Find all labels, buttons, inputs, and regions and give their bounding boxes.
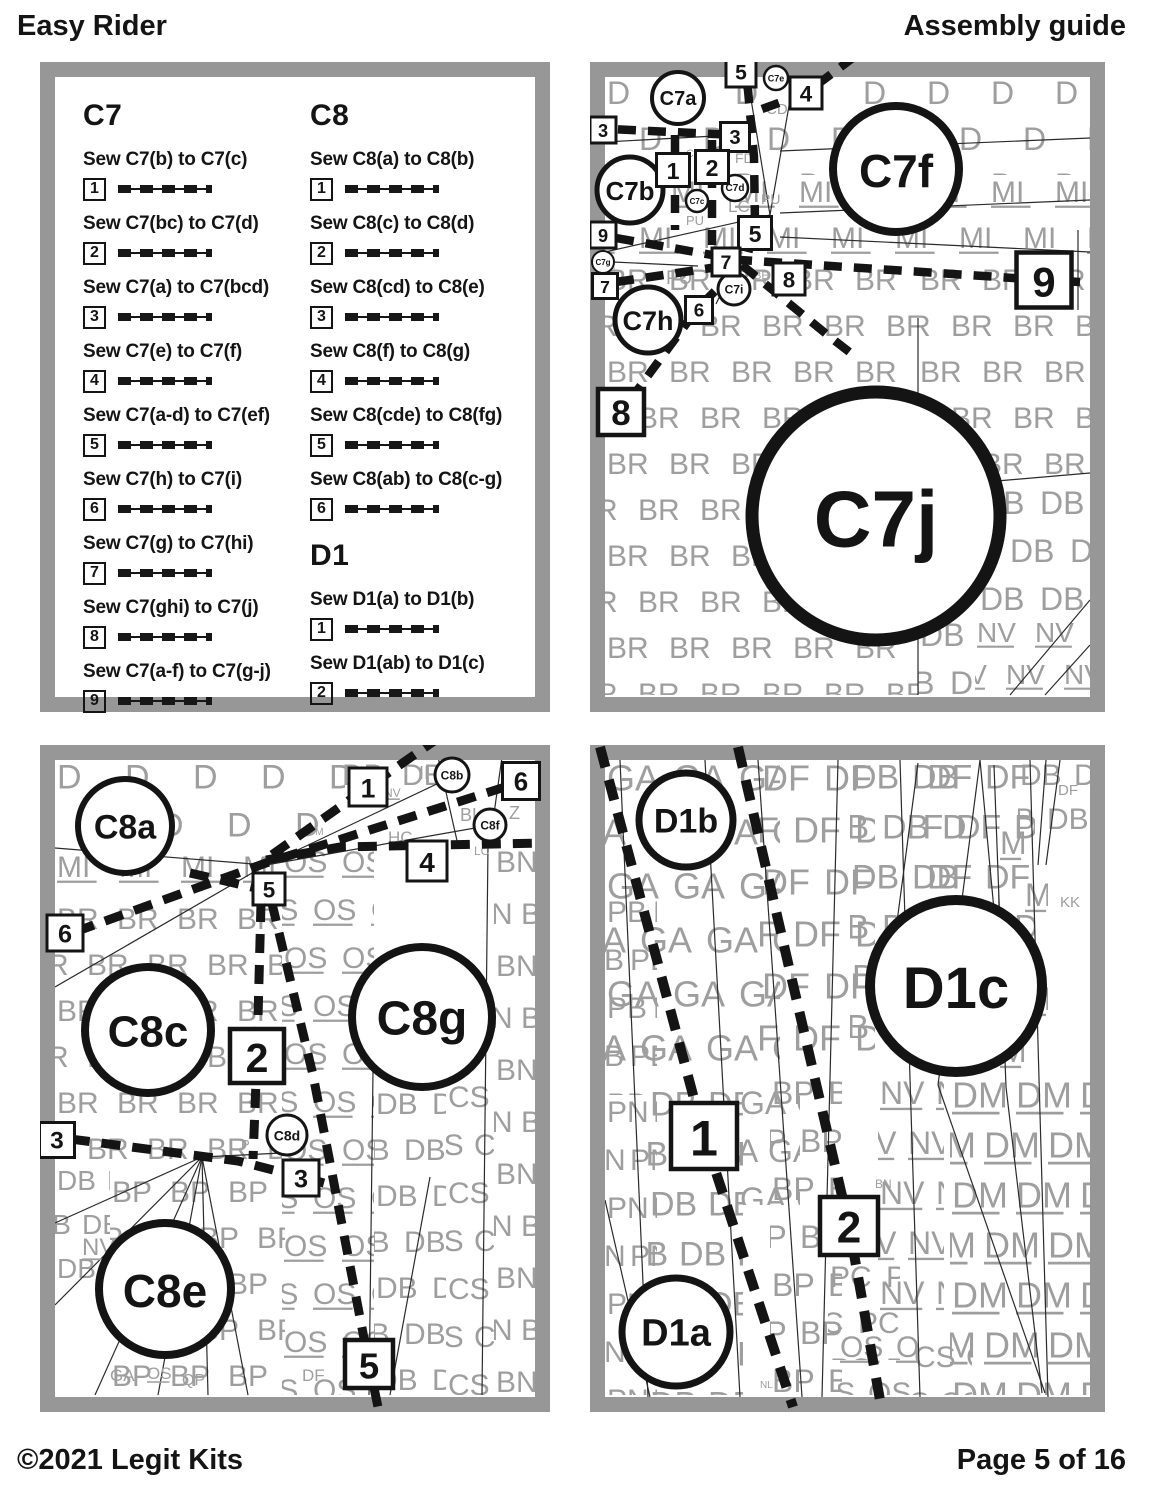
seam-number-label: 8 [783, 268, 795, 293]
seam-number-label: 7 [721, 252, 732, 274]
step-seam-row: 2 [83, 241, 310, 265]
fabric-code-NL: NL [760, 1380, 773, 1391]
fabric-code-region-DM [950, 1075, 1090, 1395]
step-instruction-text: Sew C8(cd) to C8(e) [310, 277, 535, 298]
sew-step: Sew D1(a) to D1(b)1 [310, 589, 535, 641]
step-number-box: 2 [310, 242, 333, 265]
step-instruction-text: Sew C7(h) to C7(i) [83, 469, 310, 490]
seam-dash-sample [345, 249, 439, 257]
sew-step: Sew C7(e) to C7(f)4 [83, 341, 310, 393]
step-instruction-text: Sew C7(bc) to C7(d) [83, 213, 310, 234]
seam-number-label: 9 [1032, 259, 1055, 306]
step-seam-row: 1 [310, 617, 535, 641]
step-seam-row: 4 [83, 369, 310, 393]
sew-step: Sew C8(ab) to C8(c-g)6 [310, 469, 535, 521]
sew-step: Sew C8(cde) to C8(fg)5 [310, 405, 535, 457]
step-seam-row: 6 [310, 497, 535, 521]
seam-dash-sample [118, 697, 212, 705]
sew-step: Sew D1(ab) to D1(c)2 [310, 653, 535, 705]
sew-step: Sew C8(c) to C8(d)2 [310, 213, 535, 265]
step-number-box: 1 [310, 618, 333, 641]
seam-dash-sample [118, 569, 212, 577]
instruction-column-right: C8Sew C8(a) to C8(b)1Sew C8(c) to C8(d)2… [310, 97, 535, 725]
seam-dash-sample [118, 185, 212, 193]
step-seam-row: 2 [310, 241, 535, 265]
step-seam-row: 3 [83, 305, 310, 329]
seam-number-label: 9 [598, 226, 608, 246]
piece-label-D1c: D1c [903, 956, 1009, 1021]
seam-dash-sample [345, 313, 439, 321]
diagram-panel-d1: GAGAGADFDFDFDBDBDBDFDFDFDBDBDBMMMPBPBPBP… [590, 745, 1105, 1412]
seam-dash-sample [118, 633, 212, 641]
instructions-panel: C7Sew C7(b) to C7(c)1Sew C7(bc) to C7(d)… [40, 62, 550, 712]
fabric-code-PU: PU [761, 191, 780, 207]
step-number-box: 2 [83, 242, 106, 265]
step-seam-row: 3 [310, 305, 535, 329]
sew-step: Sew C7(g) to C7(hi)7 [83, 533, 310, 585]
step-number-box: 3 [83, 306, 106, 329]
step-instruction-text: Sew C7(b) to C7(c) [83, 149, 310, 170]
seam-number-label: 4 [419, 847, 435, 878]
page-subtitle: Assembly guide [904, 10, 1126, 43]
instruction-columns: C7Sew C7(b) to C7(c)1Sew C7(bc) to C7(d)… [55, 77, 535, 725]
step-instruction-text: Sew C7(a) to C7(bcd) [83, 277, 310, 298]
diagram-svg-c7: DDDMIMIMIBRBRBRBRBRBRDBDBDBDBDBDBNVNVNVC… [590, 62, 1105, 712]
section-title: D1 [310, 539, 535, 573]
piece-label-C8d: C8d [274, 1128, 300, 1144]
step-instruction-text: Sew C7(ghi) to C7(j) [83, 597, 310, 618]
instruction-column-left: C7Sew C7(b) to C7(c)1Sew C7(bc) to C7(d)… [83, 97, 310, 725]
seam-dash-sample [345, 185, 439, 193]
sew-step: Sew C8(cd) to C8(e)3 [310, 277, 535, 329]
sew-step: Sew C7(a) to C7(bcd)3 [83, 277, 310, 329]
fabric-code-region-NV [975, 617, 1090, 695]
section-title: C7 [83, 99, 310, 133]
step-number-box: 6 [83, 498, 106, 521]
seam-number-label: 3 [729, 127, 740, 149]
step-seam-row: 8 [83, 625, 310, 649]
step-seam-row: 5 [310, 433, 535, 457]
instructions-panel-inner: C7Sew C7(b) to C7(c)1Sew C7(bc) to C7(d)… [55, 77, 535, 697]
step-instruction-text: Sew C8(a) to C8(b) [310, 149, 535, 170]
diagram-svg-c8: DDDDBDBDBMIMIMIOSOSOSBRBRBRDBDBDBCSCSCSB… [40, 745, 550, 1412]
step-seam-row: 1 [310, 177, 535, 201]
seam-number-label: 5 [359, 1345, 379, 1386]
seam-number-label: 5 [263, 878, 275, 903]
step-number-box: 3 [310, 306, 333, 329]
page-title: Easy Rider [17, 10, 167, 43]
seam-number-label: 7 [600, 277, 610, 297]
step-instruction-text: Sew D1(a) to D1(b) [310, 589, 535, 610]
section-C8: C8Sew C8(a) to C8(b)1Sew C8(c) to C8(d)2… [310, 99, 535, 521]
piece-label-C8b: C8b [441, 768, 464, 782]
fabric-code-OS: OS [147, 1364, 172, 1383]
fabric-code-region-CS [446, 1080, 494, 1395]
step-instruction-text: Sew C7(a-d) to C7(ef) [83, 405, 310, 426]
step-number-box: 2 [310, 682, 333, 705]
seam-number-label: 2 [706, 155, 719, 181]
step-instruction-text: Sew C8(c) to C8(d) [310, 213, 535, 234]
seam-number-label: 5 [749, 221, 762, 247]
step-seam-row: 1 [83, 177, 310, 201]
step-seam-row: 7 [83, 561, 310, 585]
seam-number-label: 6 [694, 300, 705, 321]
seam-number-label: 4 [800, 82, 813, 107]
seam-number-label: 1 [667, 158, 680, 184]
seam-number-label: 6 [58, 920, 72, 948]
piece-label-C7a: C7a [660, 88, 698, 110]
diagram-panel-c7: DDDMIMIMIBRBRBRBRBRBRDBDBDBDBDBDBNVNVNVC… [590, 62, 1105, 712]
seam-number-label: 2 [837, 1204, 862, 1253]
sew-step: Sew C7(b) to C7(c)1 [83, 149, 310, 201]
sew-step: Sew C7(a-d) to C7(ef)5 [83, 405, 310, 457]
section-C7: C7Sew C7(b) to C7(c)1Sew C7(bc) to C7(d)… [83, 99, 310, 713]
step-instruction-text: Sew C8(f) to C8(g) [310, 341, 535, 362]
diagram-panel-c8: DDDDBDBDBMIMIMIOSOSOSBRBRBRDBDBDBCSCSCSB… [40, 745, 550, 1412]
fabric-code-DF: DF [1058, 782, 1078, 799]
sew-step: Sew C7(a-f) to C7(g-j)9 [83, 661, 310, 713]
piece-label-C7h: C7h [622, 306, 673, 336]
step-number-box: 9 [83, 690, 106, 713]
piece-label-C8g: C8g [377, 992, 468, 1045]
fabric-code-region-BN [494, 845, 540, 1395]
seam-dash-sample [345, 505, 439, 513]
seam-dash-sample [118, 441, 212, 449]
piece-label-C8a: C8a [94, 808, 157, 846]
step-number-box: 8 [83, 626, 106, 649]
seam-number-label: 1 [690, 1111, 718, 1167]
seam-dash-sample [118, 313, 212, 321]
fabric-code-II: II [419, 763, 429, 783]
step-number-box: 4 [310, 370, 333, 393]
seam-dash-sample [345, 441, 439, 449]
step-instruction-text: Sew C8(cde) to C8(fg) [310, 405, 535, 426]
step-number-box: 7 [83, 562, 106, 585]
piece-label-C8e: C8e [123, 1265, 207, 1317]
step-seam-row: 4 [310, 369, 535, 393]
fabric-code-PU: PU [686, 213, 704, 228]
page-number: Page 5 of 16 [957, 1444, 1126, 1477]
step-instruction-text: Sew C7(a-f) to C7(g-j) [83, 661, 310, 682]
seam-number-label: 8 [611, 394, 630, 433]
sew-step: Sew C7(bc) to C7(d)2 [83, 213, 310, 265]
step-instruction-text: Sew C7(e) to C7(f) [83, 341, 310, 362]
piece-label-C7j: C7j [814, 475, 939, 564]
step-seam-row: 2 [310, 681, 535, 705]
step-number-box: 5 [310, 434, 333, 457]
piece-label-C7i: C7i [725, 282, 744, 296]
section-title: C8 [310, 99, 535, 133]
sew-step: Sew C7(ghi) to C7(j)8 [83, 597, 310, 649]
fabric-code-QP: QP [182, 1372, 205, 1389]
piece-label-C7c: C7c [690, 197, 705, 206]
step-seam-row: 6 [83, 497, 310, 521]
seam-number-label: 3 [294, 1165, 308, 1193]
piece-label-D1b: D1b [654, 802, 718, 840]
piece-label-D1a: D1a [641, 1313, 712, 1355]
step-number-box: 6 [310, 498, 333, 521]
step-number-box: 1 [310, 178, 333, 201]
step-seam-row: 9 [83, 689, 310, 713]
seam-dash-sample [118, 505, 212, 513]
fabric-code-DF: DF [302, 1366, 325, 1385]
section-D1: D1Sew D1(a) to D1(b)1Sew D1(ab) to D1(c)… [310, 539, 535, 705]
seam-number-label: 3 [50, 1128, 64, 1155]
seam-dash-sample [118, 249, 212, 257]
step-instruction-text: Sew D1(ab) to D1(c) [310, 653, 535, 674]
seam-number-label: 5 [735, 62, 747, 85]
piece-label-C8c: C8c [108, 1007, 189, 1056]
sew-step: Sew C8(a) to C8(b)1 [310, 149, 535, 201]
seam-number-label: 6 [514, 768, 528, 796]
step-number-box: 5 [83, 434, 106, 457]
fabric-code-P: P [241, 1137, 250, 1152]
sew-step: Sew C8(f) to C8(g)4 [310, 341, 535, 393]
copyright: ©2021 Legit Kits [17, 1444, 243, 1477]
step-seam-row: 5 [83, 433, 310, 457]
seam-number-label: 2 [246, 1035, 269, 1081]
seam-number-label: 3 [598, 121, 608, 141]
diagram-svg-d1: GAGAGADFDFDFDBDBDBDFDFDFDBDBDBMMMPBPBPBP… [590, 745, 1105, 1412]
piece-label-C7b: C7b [605, 176, 654, 206]
step-instruction-text: Sew C7(g) to C7(hi) [83, 533, 310, 554]
seam-dash-sample [345, 689, 439, 697]
fabric-code-KK: KK [1060, 894, 1080, 911]
piece-label-C7g: C7g [595, 258, 610, 267]
piece-label-C8f: C8f [480, 818, 500, 832]
step-number-box: 4 [83, 370, 106, 393]
fabric-code-GA: GA [110, 1366, 135, 1385]
assembly-guide-page: Easy Rider Assembly guide C7Sew C7(b) to… [0, 0, 1154, 1490]
piece-label-C7e: C7e [768, 73, 785, 83]
seam-dash-sample [345, 377, 439, 385]
fabric-code-Z: Z [509, 803, 520, 823]
piece-label-C7f: C7f [859, 145, 934, 197]
seam-dash-sample [118, 377, 212, 385]
fabric-code-BN: BN [875, 1177, 892, 1191]
seam-dash-sample [345, 625, 439, 633]
sew-step: Sew C7(h) to C7(i)6 [83, 469, 310, 521]
step-instruction-text: Sew C8(ab) to C8(c-g) [310, 469, 535, 490]
step-number-box: 1 [83, 178, 106, 201]
seam-number-label: 1 [361, 773, 376, 803]
